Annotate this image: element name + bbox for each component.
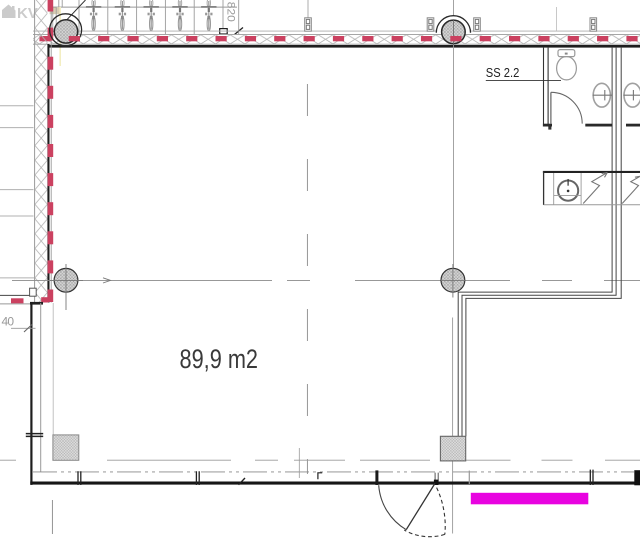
- svg-text:40: 40: [2, 315, 15, 329]
- svg-text:89,9 m2: 89,9 m2: [180, 344, 259, 374]
- svg-text:820: 820: [224, 2, 236, 22]
- svg-text:SS 2.2: SS 2.2: [486, 65, 520, 80]
